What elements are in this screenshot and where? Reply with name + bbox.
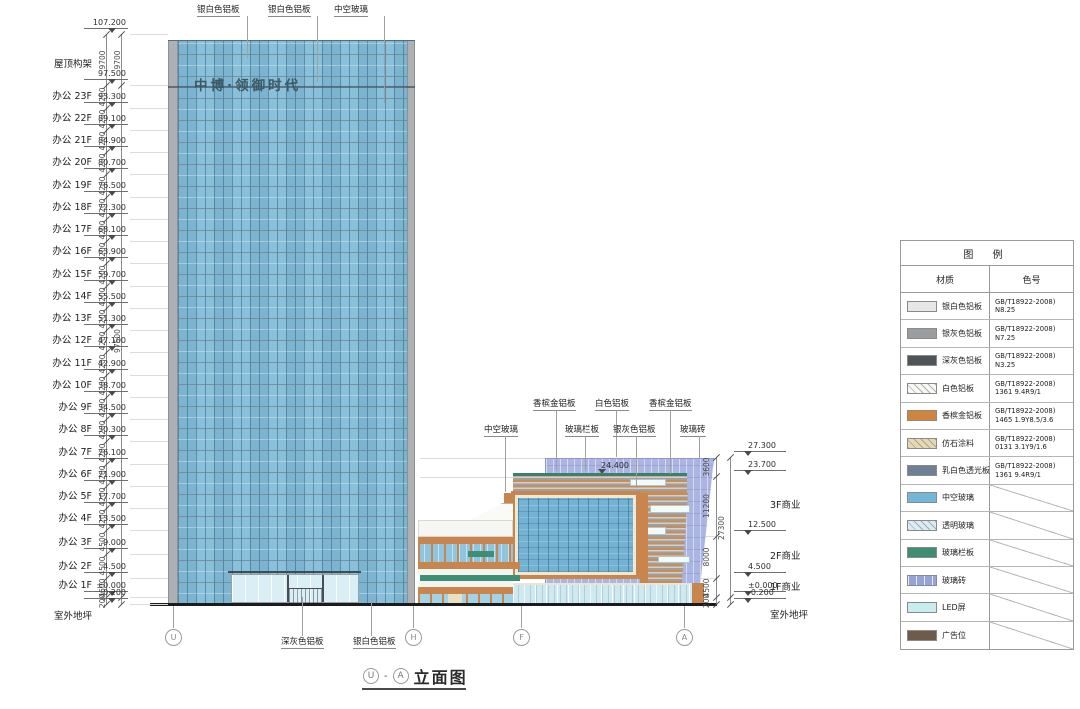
color-code-line: 0131 3.1Y9/1.6 <box>995 443 1073 452</box>
material-label: 银白色铝板 <box>268 5 311 17</box>
elevation-marker <box>744 598 752 603</box>
level-line <box>130 263 168 264</box>
color-code-line: GB/T18922-2008) <box>995 407 1073 416</box>
label-leader-line <box>247 16 248 58</box>
material-swatch <box>907 383 937 394</box>
elevation-marker <box>744 572 752 577</box>
material-swatch <box>907 547 937 558</box>
overall-dim-value: 97500 <box>114 324 122 358</box>
material-swatch <box>907 410 937 421</box>
legend-material-cell: 香槟金铝板 <box>901 403 990 429</box>
floor-label: 办公 8F <box>28 424 92 435</box>
grid-bubble-a: A <box>676 629 693 646</box>
floor-label: 办公 13F <box>28 313 92 324</box>
legend-col-color: 色号 <box>990 266 1073 292</box>
floor-label: 办公 12F <box>28 335 92 346</box>
office-tower: 中博·领御时代 <box>168 40 415 605</box>
dim-value: 8000 <box>703 540 711 574</box>
material-swatch <box>907 520 937 531</box>
ground-line <box>150 603 717 606</box>
floor-label: 办公 2F <box>28 561 92 572</box>
floor-label: 办公 22F <box>28 113 92 124</box>
floor-label: 办公 14F <box>28 291 92 302</box>
material-swatch <box>907 355 937 366</box>
floor-label: 屋顶构架 <box>28 59 92 70</box>
label-leader-line <box>670 410 671 474</box>
grid-bubble-f: F <box>513 629 530 646</box>
color-code-line: GB/T18922-2008) <box>995 298 1073 307</box>
elevation-marker <box>744 451 752 456</box>
level-line <box>130 486 168 487</box>
grid-bubble-u: U <box>165 629 182 646</box>
level-line <box>130 508 168 509</box>
tower-sign: 中博·领御时代 <box>194 74 301 94</box>
white-wall-band <box>418 520 513 537</box>
color-code-line: N3.25 <box>995 361 1073 370</box>
floor-label: 室外地坪 <box>770 610 826 621</box>
color-code-cell <box>990 594 1073 620</box>
floor-label: 办公 3F <box>28 537 92 548</box>
floor-label: 办公 7F <box>28 447 92 458</box>
legend-material-cell: 深灰色铝板 <box>901 348 990 374</box>
material-name: 深灰色铝板 <box>942 355 982 366</box>
legend-row: 中空玻璃 <box>901 485 1073 512</box>
legend-material-cell: LED屏 <box>901 594 990 620</box>
material-swatch <box>907 328 937 339</box>
grid-line <box>173 606 174 628</box>
entrance-canopy <box>228 571 361 573</box>
material-name: 香槟金铝板 <box>942 410 982 421</box>
color-code-cell: GB/T18922-2008)0131 3.1Y9/1.6 <box>990 430 1073 456</box>
material-swatch <box>907 492 937 503</box>
window-strip <box>418 544 513 562</box>
floor-label: 办公 16F <box>28 246 92 257</box>
led-screen <box>650 505 690 513</box>
color-code-line: N7.25 <box>995 334 1073 343</box>
legend-row: 仿石涂料GB/T18922-2008)0131 3.1Y9/1.6 <box>901 430 1073 457</box>
level-line <box>130 308 168 309</box>
level-line <box>130 464 168 465</box>
dim-value: 200 <box>703 584 711 618</box>
legend-material-cell: 玻璃砖 <box>901 567 990 593</box>
level-line <box>130 34 168 35</box>
dim-tick <box>727 601 734 608</box>
tower-curtain-wall <box>178 41 407 605</box>
legend-material-cell: 广告位 <box>901 622 990 649</box>
legend-row: 银灰色铝板GB/T18922-2008)N7.25 <box>901 320 1073 347</box>
material-name: 透明玻璃 <box>942 520 974 531</box>
level-line <box>130 419 168 420</box>
material-name: LED屏 <box>942 602 966 613</box>
color-code-line: 1465 1.9Y8.5/3.6 <box>995 416 1073 425</box>
legend-row: 乳白色透光板GB/T18922-2008)1361 9.4R9/1 <box>901 457 1073 484</box>
material-swatch <box>907 602 937 613</box>
legend-row: 广告位 <box>901 622 1073 649</box>
legend-row: 香槟金铝板GB/T18922-2008)1465 1.9Y8.5/3.6 <box>901 403 1073 430</box>
title-underline <box>362 688 466 690</box>
floor-label: 办公 4F <box>28 513 92 524</box>
elevation-line <box>734 530 786 531</box>
material-name: 银灰色铝板 <box>942 328 982 339</box>
elevation-drawing: 中博·领御时代 24.400 中博·领御时代 图 例 <box>0 0 1080 709</box>
material-label: 香槟金铝板 <box>533 399 576 411</box>
tower-right-aluminum-edge <box>407 41 415 605</box>
legend-row: 透明玻璃 <box>901 512 1073 539</box>
level-line <box>130 241 168 242</box>
material-label: 白色铝板 <box>595 399 629 411</box>
entrance-door <box>289 588 322 603</box>
color-code-cell <box>990 540 1073 566</box>
legend-material-cell: 仿石涂料 <box>901 430 990 456</box>
elevation-marker <box>744 470 752 475</box>
title-grid-end: A <box>393 668 409 684</box>
floor-label: 办公 9F <box>28 402 92 413</box>
legend-title: 图 例 <box>901 241 1073 266</box>
material-swatch <box>907 301 937 312</box>
material-name: 玻璃砖 <box>942 575 966 586</box>
grid-line <box>413 606 414 628</box>
color-code-line: GB/T18922-2008) <box>995 352 1073 361</box>
level-line <box>130 597 168 598</box>
color-code-line: 1361 9.4R9/1 <box>995 388 1073 397</box>
legend-row: 深灰色铝板GB/T18922-2008)N3.25 <box>901 348 1073 375</box>
level-line <box>130 174 168 175</box>
material-label: 银白色铝板 <box>353 637 396 649</box>
dim-value: 3600 <box>703 450 711 484</box>
material-label: 深灰色铝板 <box>281 637 324 649</box>
level-line <box>130 108 168 109</box>
level-line <box>130 330 168 331</box>
elevation-marker <box>744 530 752 535</box>
dim-value: 11200 <box>703 489 711 523</box>
color-code-cell: GB/T18922-2008)N8.25 <box>990 293 1073 319</box>
legend-rows: 银白色铝板GB/T18922-2008)N8.25银灰色铝板GB/T18922-… <box>901 293 1073 649</box>
material-swatch <box>907 575 937 586</box>
material-label: 玻璃栏板 <box>565 425 599 437</box>
elevation-value: 23.700 <box>748 460 792 469</box>
grid-bubble-h: H <box>405 629 422 646</box>
title-grid-start: U <box>363 668 379 684</box>
floor-label: 3F商业 <box>770 500 826 511</box>
material-name: 仿石涂料 <box>942 438 974 449</box>
floor-label: 办公 10F <box>28 380 92 391</box>
label-leader-line <box>699 436 700 459</box>
color-code-cell: GB/T18922-2008)1465 1.9Y8.5/3.6 <box>990 403 1073 429</box>
insulated-glass <box>518 498 633 572</box>
material-name: 乳白色透光板 <box>942 465 990 476</box>
color-code-cell: GB/T18922-2008)1361 9.4R9/1 <box>990 457 1073 483</box>
color-code-cell: GB/T18922-2008)1361 9.4R9/1 <box>990 375 1073 401</box>
elevation-line <box>734 598 786 599</box>
level-line <box>130 375 168 376</box>
level-line <box>130 554 168 555</box>
material-name: 广告位 <box>942 630 966 641</box>
dim-chain-line <box>730 458 731 604</box>
level-line <box>130 219 168 220</box>
champagne-slab <box>418 587 520 594</box>
label-leader-line <box>585 436 586 470</box>
level-line <box>130 604 168 605</box>
label-leader-line <box>317 16 318 82</box>
elevation-value: -0.200 <box>748 588 792 597</box>
floor-label: 室外地坪 <box>28 611 92 622</box>
tower-entrance-storefront <box>231 574 359 603</box>
color-code-line: GB/T18922-2008) <box>995 325 1073 334</box>
material-label: 中空玻璃 <box>484 425 518 437</box>
label-leader-line <box>636 436 637 488</box>
level-line <box>130 197 168 198</box>
elevation-line <box>734 470 786 471</box>
material-label: 银白色铝板 <box>197 5 240 17</box>
material-label: 银灰色铝板 <box>613 425 656 437</box>
floor-label: 办公 6F <box>28 469 92 480</box>
level-line <box>130 441 168 442</box>
level-line <box>130 286 168 287</box>
floor-label: 2F商业 <box>770 551 826 562</box>
transparent-storefront <box>513 583 692 604</box>
floor-label: 办公 18F <box>28 202 92 213</box>
label-leader-line <box>556 410 557 470</box>
level-line <box>130 85 168 86</box>
color-code-line: GB/T18922-2008) <box>995 380 1073 389</box>
title-block: U - A 立面图 <box>363 664 468 688</box>
legend-row: 白色铝板GB/T18922-2008)1361 9.4R9/1 <box>901 375 1073 402</box>
floor-label: 办公 11F <box>28 358 92 369</box>
color-code-line: 1361 9.4R9/1 <box>995 471 1073 480</box>
dim-tick <box>118 601 125 608</box>
dim-value: 9700 <box>99 43 107 77</box>
champagne-band <box>418 537 513 544</box>
floor-label: 办公 23F <box>28 91 92 102</box>
legend-material-cell: 中空玻璃 <box>901 485 990 511</box>
material-name: 中空玻璃 <box>942 492 974 503</box>
grid-line <box>684 606 685 628</box>
color-code-cell <box>990 622 1073 649</box>
color-code-line: GB/T18922-2008) <box>995 435 1073 444</box>
elevation-line <box>84 28 128 29</box>
grid-line <box>521 606 522 628</box>
legend-material-cell: 白色铝板 <box>901 375 990 401</box>
color-code-cell <box>990 567 1073 593</box>
floor-label: 办公 15F <box>28 269 92 280</box>
legend-row: LED屏 <box>901 594 1073 621</box>
color-code-cell <box>990 512 1073 538</box>
elevation-value: 12.500 <box>748 520 792 529</box>
level-line <box>130 152 168 153</box>
dim-value: 200 <box>99 584 107 618</box>
tower-left-aluminum-edge <box>168 41 178 605</box>
legend-header: 材质 色号 <box>901 266 1073 293</box>
glass-railing <box>468 551 494 557</box>
level-line <box>130 530 168 531</box>
material-swatch <box>907 438 937 449</box>
legend-row: 玻璃栏板 <box>901 540 1073 567</box>
elevation-line <box>734 572 786 573</box>
led-screen <box>658 556 690 563</box>
elevation-line <box>734 451 786 452</box>
legend-material-cell: 银灰色铝板 <box>901 320 990 346</box>
color-code-line: N8.25 <box>995 306 1073 315</box>
elevation-value: 107.200 <box>82 18 126 27</box>
material-swatch <box>907 630 937 641</box>
level-line <box>130 578 168 579</box>
floor-label: 办公 19F <box>28 180 92 191</box>
level-line <box>130 130 168 131</box>
champagne-slab <box>418 562 520 569</box>
legend-material-cell: 银白色铝板 <box>901 293 990 319</box>
elevation-value: 4.500 <box>748 562 792 571</box>
champagne-pilaster <box>640 493 648 583</box>
podium-glass-window <box>511 491 640 579</box>
overall-dim-value: 27300 <box>718 511 726 545</box>
legend-row: 玻璃砖 <box>901 567 1073 594</box>
level-line <box>130 352 168 353</box>
material-name: 玻璃栏板 <box>942 547 974 558</box>
label-leader-line <box>505 436 506 492</box>
label-leader-line <box>384 16 385 103</box>
material-name: 白色铝板 <box>942 383 974 394</box>
legend-row: 银白色铝板GB/T18922-2008)N8.25 <box>901 293 1073 320</box>
entrance-door-frame <box>287 575 324 602</box>
legend-material-cell: 玻璃栏板 <box>901 540 990 566</box>
color-code-cell: GB/T18922-2008)N7.25 <box>990 320 1073 346</box>
legend-col-material: 材质 <box>901 266 990 292</box>
floor-label: 办公 21F <box>28 135 92 146</box>
overall-dim-value: 9700 <box>114 43 122 77</box>
drawing-title: 立面图 <box>414 664 468 688</box>
title-separator: - <box>384 671 388 682</box>
elevation-value: 27.300 <box>748 441 792 450</box>
legend-material-cell: 透明玻璃 <box>901 512 990 538</box>
color-code-cell: GB/T18922-2008)N3.25 <box>990 348 1073 374</box>
material-name: 银白色铝板 <box>942 301 982 312</box>
level-line <box>130 397 168 398</box>
color-code-line: GB/T18922-2008) <box>995 462 1073 471</box>
material-swatch <box>907 465 937 476</box>
legend-table: 图 例 材质 色号 银白色铝板GB/T18922-2008)N8.25银灰色铝板… <box>900 240 1074 650</box>
material-label: 中空玻璃 <box>334 5 368 17</box>
legend-material-cell: 乳白色透光板 <box>901 457 990 483</box>
material-label: 玻璃砖 <box>680 425 706 437</box>
floor-label: 办公 20F <box>28 157 92 168</box>
color-code-cell <box>990 485 1073 511</box>
floor-label: 办公 5F <box>28 491 92 502</box>
label-leader-line <box>371 600 372 636</box>
floor-label: 办公 17F <box>28 224 92 235</box>
label-leader-line <box>302 597 303 636</box>
